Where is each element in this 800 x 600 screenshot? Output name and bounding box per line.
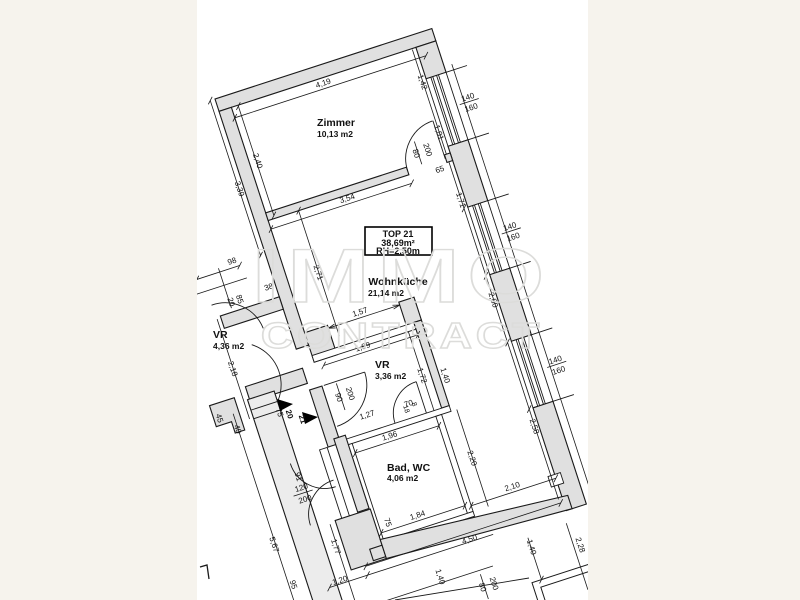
svg-text:4,06 m2: 4,06 m2 <box>387 473 418 483</box>
svg-text:Zimmer: Zimmer <box>317 117 355 129</box>
svg-text:3,36 m2: 3,36 m2 <box>375 371 406 381</box>
svg-text:CONTRACT: CONTRACT <box>261 315 543 356</box>
svg-text:4,36 m2: 4,36 m2 <box>213 341 244 351</box>
svg-text:10,13 m2: 10,13 m2 <box>317 129 353 139</box>
svg-text:VR: VR <box>375 359 390 371</box>
svg-text:IMMO: IMMO <box>252 233 552 318</box>
svg-text:VR: VR <box>213 329 228 341</box>
